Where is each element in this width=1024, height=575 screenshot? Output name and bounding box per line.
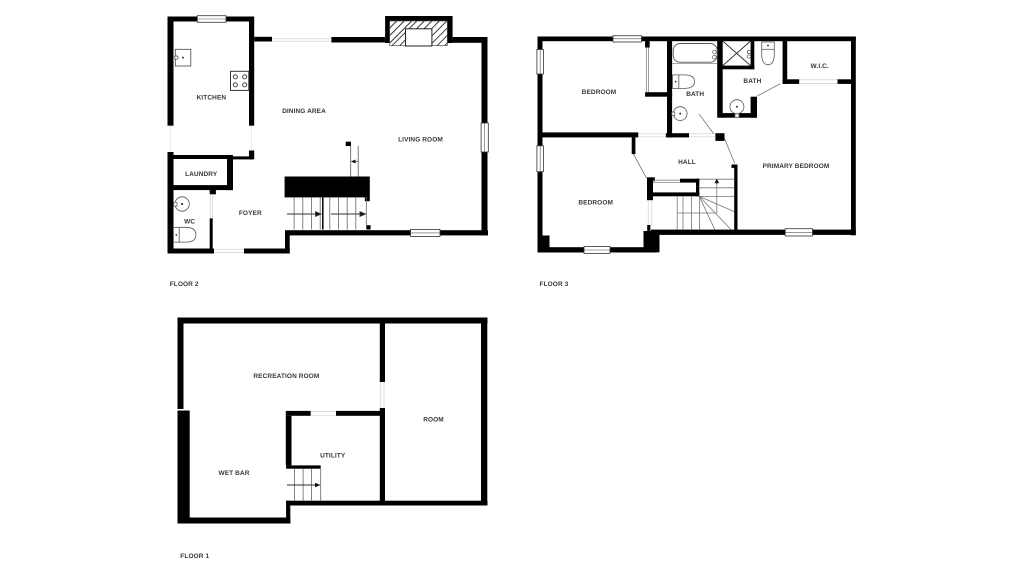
svg-text:ROOM: ROOM [423,417,444,424]
svg-text:LIVING ROOM: LIVING ROOM [398,137,443,144]
svg-text:FLOOR 2: FLOOR 2 [170,281,199,288]
svg-text:WC: WC [184,218,195,225]
svg-text:LAUNDRY: LAUNDRY [185,171,218,178]
svg-text:HALL: HALL [678,159,696,166]
svg-text:BATH: BATH [743,78,761,85]
svg-text:RECREATION ROOM: RECREATION ROOM [253,373,319,380]
svg-text:KITCHEN: KITCHEN [197,94,227,101]
svg-text:UTILITY: UTILITY [320,452,346,459]
svg-text:BEDROOM: BEDROOM [578,199,613,206]
svg-text:DINING AREA: DINING AREA [282,108,326,115]
svg-text:FLOOR 1: FLOOR 1 [180,553,209,560]
svg-text:W.I.C.: W.I.C. [811,63,829,70]
svg-text:WET BAR: WET BAR [218,470,249,477]
svg-text:FLOOR 3: FLOOR 3 [540,281,569,288]
svg-text:PRIMARY BEDROOM: PRIMARY BEDROOM [763,163,830,170]
svg-text:BEDROOM: BEDROOM [582,89,617,96]
svg-text:FOYER: FOYER [239,210,262,217]
svg-text:BATH: BATH [686,91,704,98]
